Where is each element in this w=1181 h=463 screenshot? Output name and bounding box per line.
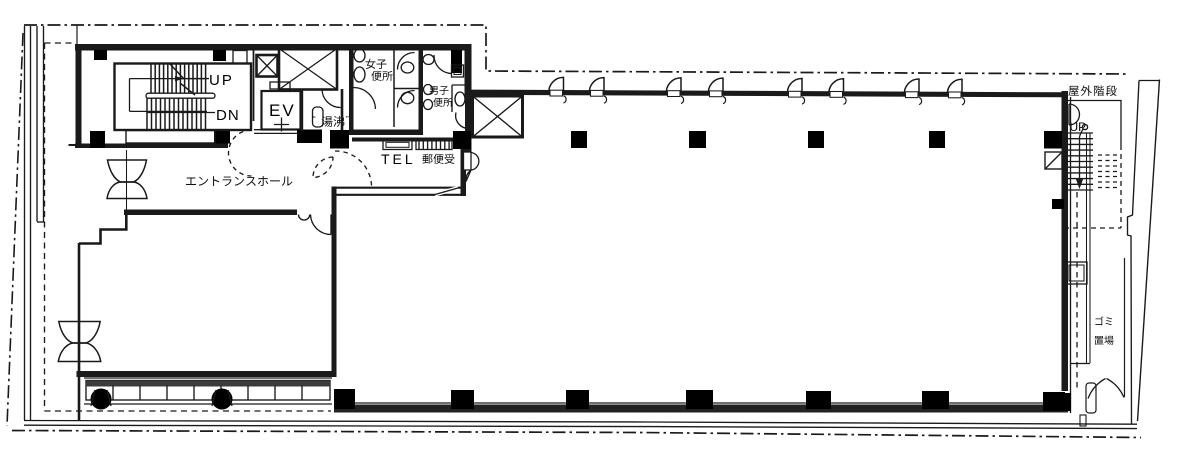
svg-text:“: “	[313, 115, 316, 124]
svg-text:UP: UP	[209, 72, 234, 89]
svg-text:EV: EV	[269, 101, 296, 120]
svg-text:UP: UP	[1070, 120, 1087, 134]
svg-text:”: ”	[346, 115, 349, 124]
svg-text:TEL: TEL	[381, 151, 416, 167]
svg-text:DN: DN	[216, 107, 240, 124]
